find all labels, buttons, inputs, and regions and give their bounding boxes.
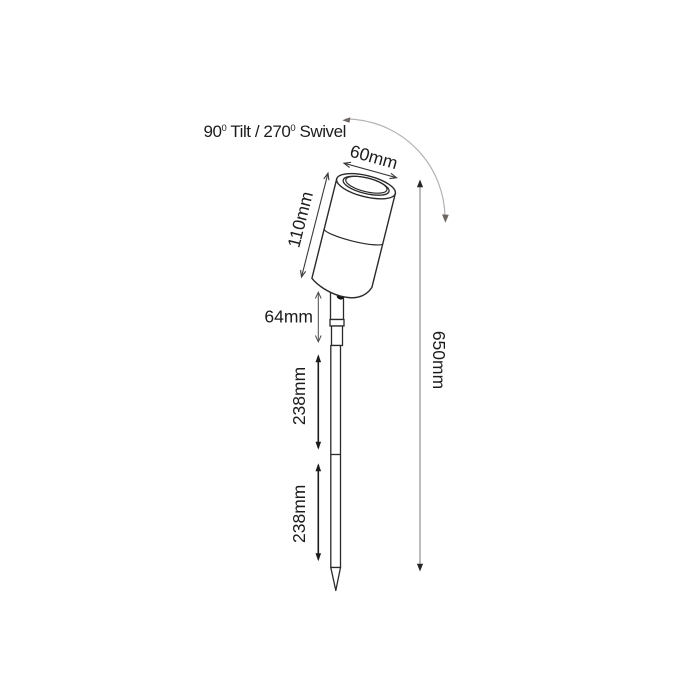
svg-text:238mm: 238mm	[289, 485, 309, 543]
svg-text:650mm: 650mm	[429, 331, 449, 389]
svg-text:238mm: 238mm	[289, 367, 309, 425]
svg-text:64mm: 64mm	[264, 307, 313, 327]
